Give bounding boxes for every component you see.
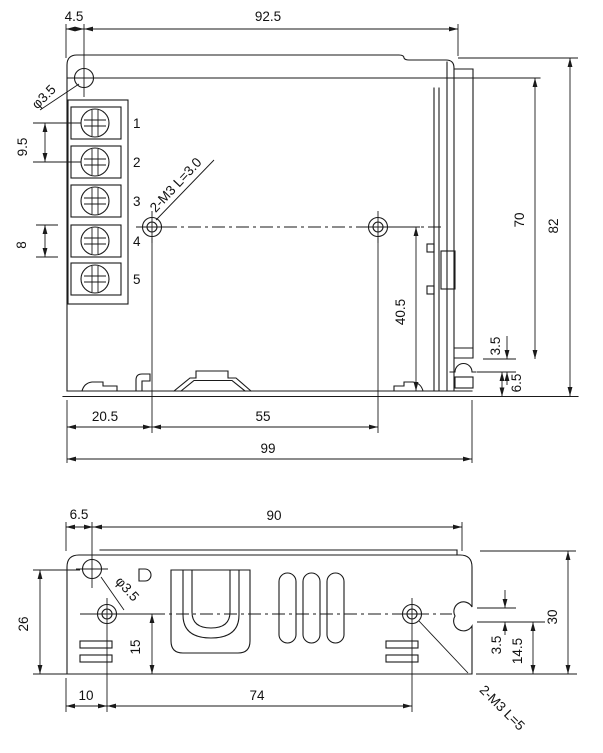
vent-slots <box>279 573 344 643</box>
terminal-pitch-ac-label: 9.5 <box>15 138 30 157</box>
latch-detail <box>441 251 455 289</box>
hole-diameter-label: φ3.5 <box>29 82 59 112</box>
dim-total-width: 99 <box>67 441 472 459</box>
hole-offset-left-label: 6.5 <box>70 507 89 522</box>
terminal-block: 1 2 3 4 5 <box>68 100 141 304</box>
dim-height-left: 26 <box>16 570 80 674</box>
dim-total-height-side: 30 <box>480 551 576 674</box>
bottom-feet-details <box>82 371 423 391</box>
terminal-number-1: 1 <box>133 116 141 131</box>
slot-offset-side-label: 3.5 <box>489 636 504 655</box>
total-height-side-label: 30 <box>545 609 560 624</box>
screw-spec-label: 2-M3 L=3.0 <box>147 155 205 215</box>
slot-height-label: 6.5 <box>509 374 524 393</box>
mechanical-drawing: 1 2 3 4 5 4.5 <box>0 0 603 753</box>
slot-offset-label: 3.5 <box>488 337 503 356</box>
side-view: 6.5 90 φ3.5 26 15 1 <box>16 507 577 733</box>
hole-offset-label: 20.5 <box>92 409 118 424</box>
dim-foot-offset: 10 <box>66 630 412 712</box>
dim-slot-height-top: 6.5 <box>502 372 524 397</box>
dim-inner-height: 70 <box>512 78 535 359</box>
dim-hole-height: 40.5 <box>388 227 420 391</box>
dim-hole-spacing-side: 74 <box>107 688 412 706</box>
foot-offset-label: 10 <box>78 688 93 703</box>
dim-body-width: 92.5 <box>84 9 458 29</box>
ac-inlet-cutout <box>171 570 250 653</box>
hole-spacing-label: 55 <box>255 409 270 424</box>
dim-screw-spec-top: 2-M3 L=3.0 <box>147 155 214 220</box>
terminal-screw <box>81 109 109 293</box>
total-width-label: 99 <box>260 441 275 456</box>
dim-mounting-width: 90 <box>93 508 462 527</box>
terminal-number-5: 5 <box>133 272 141 287</box>
dim-hole-height-side: 15 <box>124 614 160 674</box>
dim-hole-offset-left: 6.5 <box>66 507 462 551</box>
slot-height-side-label: 14.5 <box>510 638 525 664</box>
top-view: 1 2 3 4 5 4.5 <box>14 9 578 463</box>
terminal-number-4: 4 <box>133 234 141 249</box>
terminal-pitch-dc-label: 8 <box>14 241 29 249</box>
dim-terminal-pitch-dc: 8 <box>14 225 58 257</box>
hole-spacing-side-label: 74 <box>249 688 265 703</box>
hole-height-label: 40.5 <box>393 299 408 325</box>
dim-offset-left-label: 4.5 <box>65 9 84 24</box>
terminal-number-2: 2 <box>133 155 141 170</box>
inner-height-label: 70 <box>512 212 527 227</box>
dim-hole-spacing: 55 <box>152 409 378 427</box>
terminal-number-3: 3 <box>133 194 141 209</box>
height-left-label: 26 <box>16 616 31 631</box>
total-height-label: 82 <box>546 218 561 233</box>
dim-body-width-label: 92.5 <box>255 9 281 24</box>
screw-spec-side-label: 2-M3 L=5 <box>477 682 528 733</box>
mounting-width-label: 90 <box>266 508 281 523</box>
led-hole <box>139 569 151 581</box>
mechanical-drawing-page: 1 2 3 4 5 4.5 <box>0 0 603 753</box>
hole-height-side-label: 15 <box>128 639 143 654</box>
corner-hole <box>75 24 94 97</box>
